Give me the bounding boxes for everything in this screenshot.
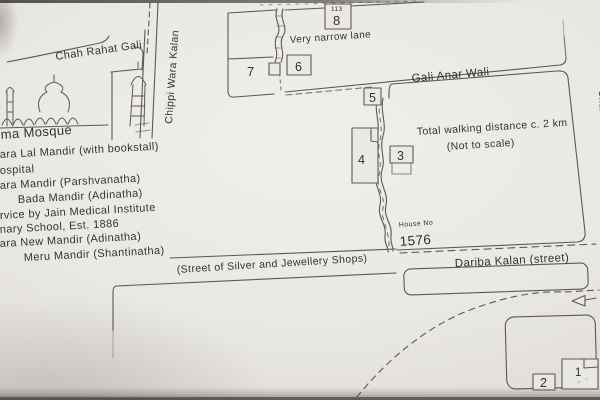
marker-number-7: 7 [247,64,255,79]
street-gali-anar-wali-label: Gali Anar Wali [411,66,490,85]
walking-note-line2: (Not to scale) [446,137,515,153]
house-number-label: House No [399,220,434,229]
narrow-lane-path-top [275,9,285,62]
street-chah-rahat-gali-label: Chah Rahat Gali [55,39,143,63]
marker-number-1: 1 [575,367,582,379]
walking-note-line1: Total walking distance c. 2 km [416,117,567,138]
street-chippi-wara-kalan-label: Chippi Wara Kalan [163,30,182,125]
marker-number-3: 3 [397,149,404,163]
block-top-east-edge [285,2,424,10]
marker-number-8-sub: 113 [331,6,343,13]
street-chippi-wara-kalan [140,3,158,138]
house-number-value: 1576 [399,232,432,249]
scanned-map-photo: Chah Rahat Gali Chippi Wara Kalan Very n… [0,0,600,400]
marker-number-2: 2 [540,376,547,390]
block-top-center [228,10,276,97]
marker-number-8: 8 [333,13,341,28]
street-right-edge-label: Chah [596,90,600,116]
marker-number-5: 5 [369,91,376,105]
mosque-icon [0,62,146,128]
lane-gate-square [269,63,280,75]
map-drawing: Chah Rahat Gali Chippi Wara Kalan Very n… [0,0,600,400]
left-arrow-icon [572,296,596,307]
marker-number-6: 6 [295,60,302,74]
legend-line-1: ara Lal Mandir (with bookstall) [0,141,159,161]
legend-line-2: ospital [0,163,35,177]
street-dariba-kalan-label: Dariba Kalan (street) [455,252,570,270]
mosque-label: ma Mosque [0,122,72,142]
very-narrow-lane-label: Very narrow lane [289,29,371,46]
street-silver-jewellery-label: (Street of Silver and Jewellery Shops) [176,252,367,276]
marker-number-4: 4 [358,153,365,167]
